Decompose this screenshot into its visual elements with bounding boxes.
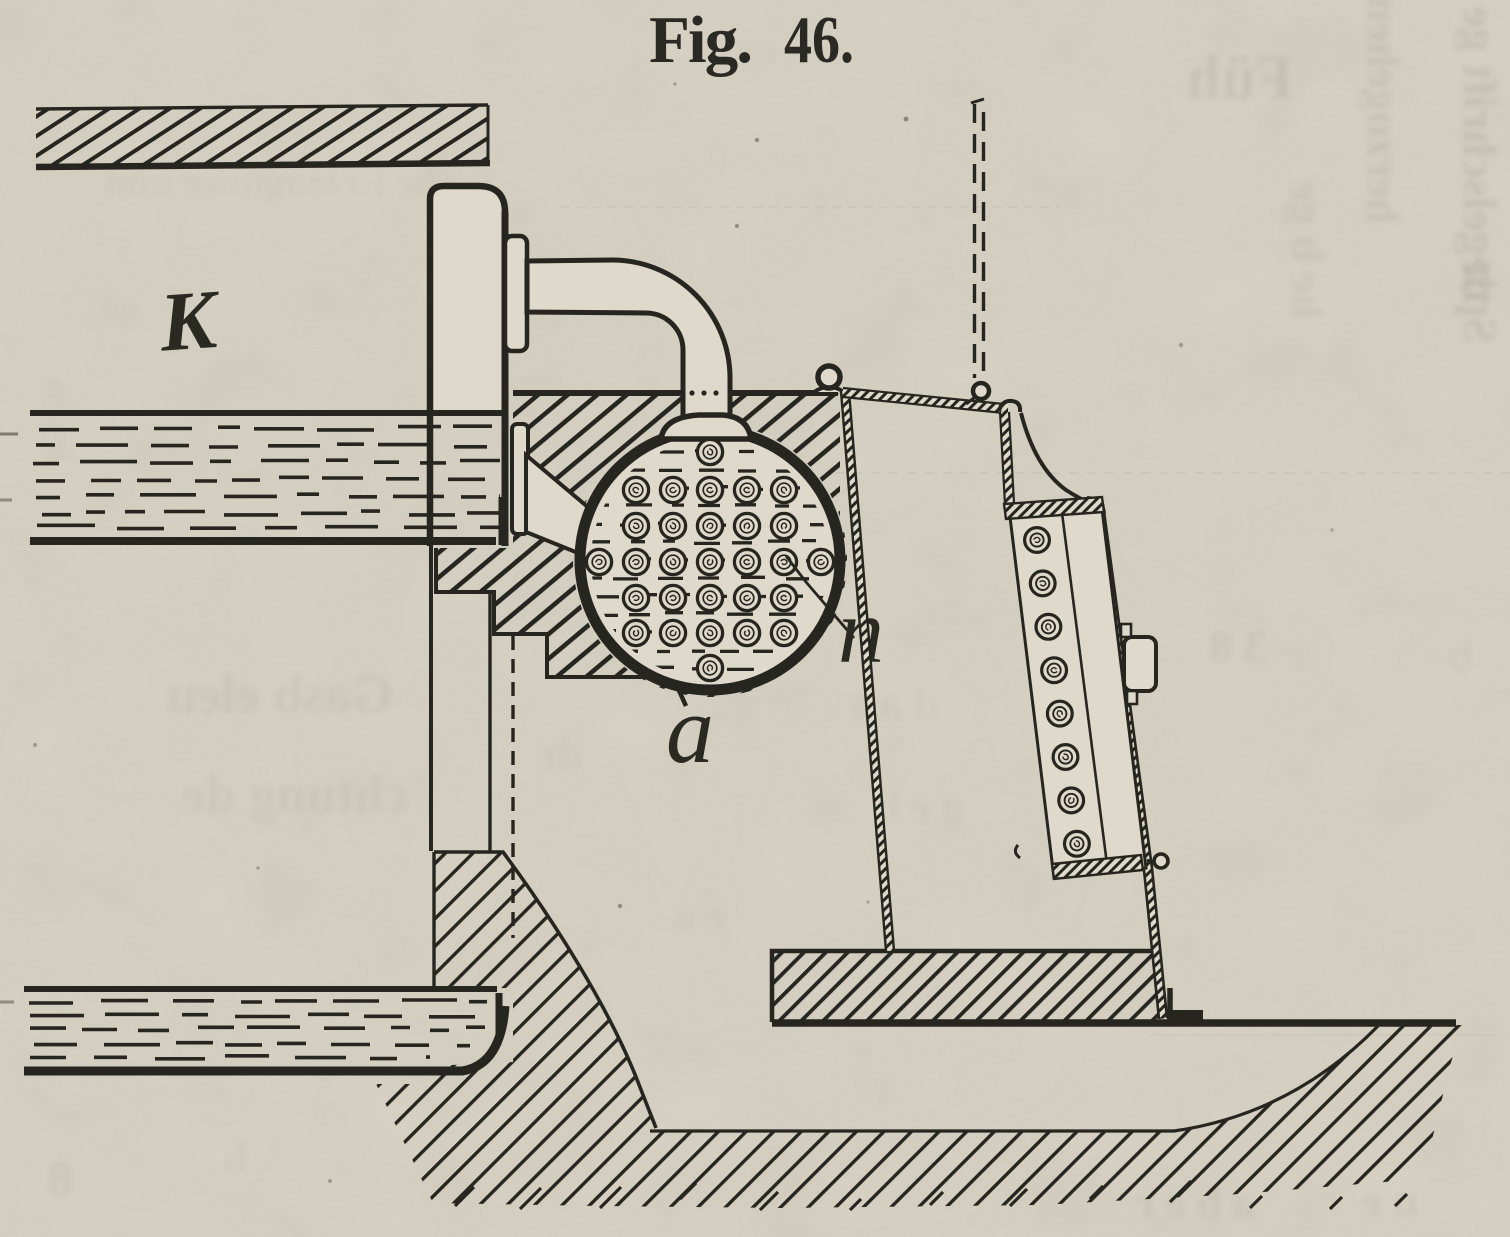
svg-text:a: a	[666, 676, 714, 783]
svg-text:dr: dr	[537, 729, 583, 780]
svg-text:herzugehen: herzugehen	[1358, 0, 1409, 224]
svg-text:Gasb eleu: Gasb eleu	[167, 664, 394, 724]
svg-text:46.: 46.	[784, 3, 854, 77]
svg-text:Füh: Füh	[1187, 44, 1294, 112]
svg-text:chtung de: chtung de	[182, 764, 409, 824]
svg-text:ge: ge	[101, 284, 139, 329]
svg-text:b: b	[1448, 631, 1472, 680]
svg-text:he b ge: he b ge	[1282, 181, 1333, 319]
svg-text:Fig.: Fig.	[649, 3, 753, 77]
svg-text:8: 8	[48, 1150, 73, 1206]
svg-text:3 8: 3 8	[1209, 621, 1267, 672]
svg-text:lesen: lesen	[36, 378, 81, 462]
svg-text:B: B	[1458, 251, 1495, 313]
svg-text:g e b: g e b	[876, 783, 964, 832]
svg-text:e o: e o	[674, 891, 727, 940]
svg-text:n e: n e	[1363, 1176, 1418, 1225]
svg-text:b: b	[223, 1133, 247, 1182]
